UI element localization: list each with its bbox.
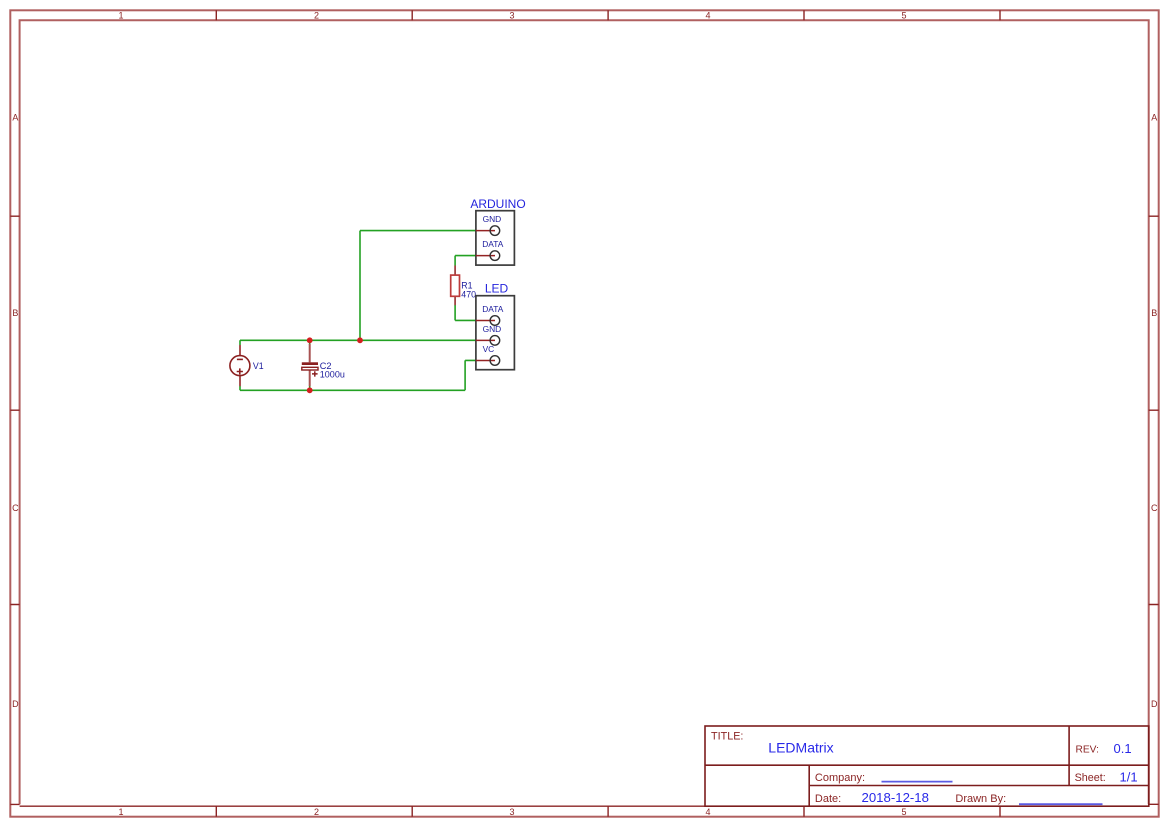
svg-text:D: D bbox=[1151, 699, 1158, 709]
svg-text:DATA: DATA bbox=[482, 239, 504, 249]
svg-text:Company:: Company: bbox=[815, 772, 865, 784]
svg-text:1: 1 bbox=[118, 807, 123, 817]
svg-text:5: 5 bbox=[901, 10, 906, 20]
svg-text:470: 470 bbox=[461, 290, 476, 300]
svg-text:C: C bbox=[1151, 503, 1158, 513]
svg-text:VC: VC bbox=[483, 344, 495, 354]
svg-text:4: 4 bbox=[705, 807, 710, 817]
svg-text:1/1: 1/1 bbox=[1120, 770, 1138, 785]
svg-text:B: B bbox=[1151, 308, 1157, 318]
svg-text:B: B bbox=[12, 308, 18, 318]
svg-text:A: A bbox=[1151, 113, 1157, 123]
svg-text:5: 5 bbox=[901, 807, 906, 817]
svg-text:0.1: 0.1 bbox=[1114, 741, 1132, 756]
svg-text:4: 4 bbox=[705, 10, 710, 20]
svg-text:D: D bbox=[12, 699, 19, 709]
svg-text:GND: GND bbox=[483, 324, 502, 334]
svg-text:3: 3 bbox=[509, 807, 514, 817]
svg-text:1: 1 bbox=[118, 10, 123, 20]
svg-text:REV:: REV: bbox=[1076, 745, 1099, 756]
svg-text:3: 3 bbox=[509, 10, 514, 20]
svg-text:TITLE:: TITLE: bbox=[711, 730, 743, 742]
svg-text:Date:: Date: bbox=[815, 793, 841, 805]
svg-text:2: 2 bbox=[314, 807, 319, 817]
svg-text:LED: LED bbox=[485, 282, 509, 296]
svg-text:A: A bbox=[12, 113, 18, 123]
svg-text:DATA: DATA bbox=[482, 304, 504, 314]
svg-text:V1: V1 bbox=[253, 361, 264, 371]
svg-text:C: C bbox=[12, 503, 19, 513]
svg-text:GND: GND bbox=[483, 214, 502, 224]
svg-text:LEDMatrix: LEDMatrix bbox=[768, 740, 833, 756]
svg-text:1000u: 1000u bbox=[320, 370, 345, 380]
svg-text:2: 2 bbox=[314, 10, 319, 20]
svg-text:ARDUINO: ARDUINO bbox=[470, 197, 525, 211]
svg-text:Drawn By:: Drawn By: bbox=[955, 793, 1006, 805]
svg-text:2018-12-18: 2018-12-18 bbox=[862, 790, 929, 805]
svg-text:Sheet:: Sheet: bbox=[1075, 772, 1106, 784]
